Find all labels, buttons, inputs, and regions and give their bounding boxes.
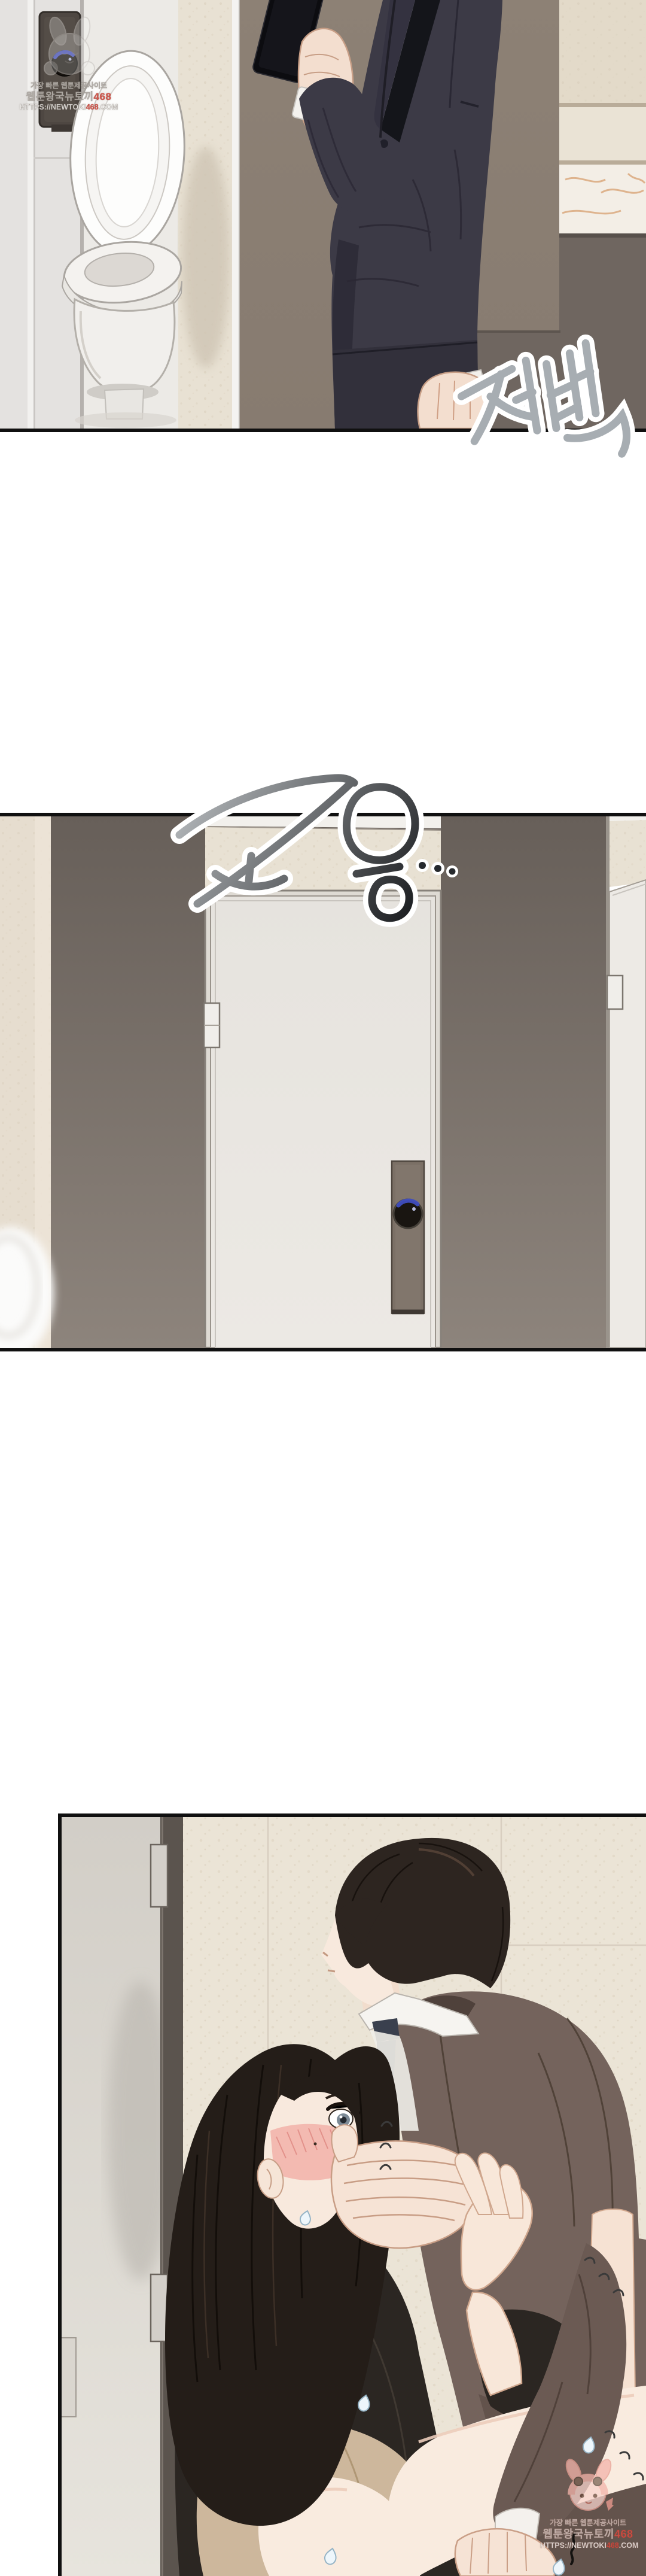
sfx-joyong-strokes [167, 758, 461, 955]
watermark-tagline: 가장 빠른 웹툰제공사이트 [540, 2519, 636, 2528]
hinge-plate-top [151, 1845, 167, 1907]
sfx-quiet: 조용 · · · · [167, 758, 461, 955]
watermark-top-left: 가장 빠른 웹툰제공사이트 웹툰왕국뉴토끼468 HTTPS://NEWTOKI… [12, 16, 126, 113]
door-edge-plate [62, 2338, 76, 2417]
watermark-url: HTTPS://NEWTOKI468.COM [12, 103, 126, 113]
stall-lock-plate [392, 1161, 424, 1314]
newtoki-mascot-pink-icon [560, 2457, 615, 2517]
neighbour-stall-door [606, 816, 646, 1348]
watermark-bottom-right: 가장 빠른 웹툰제공사이트 웹툰왕국뉴토끼468 HTTPS://NEWTOKI… [540, 2457, 636, 2550]
sfx-jeobeok-strokes [446, 326, 646, 488]
watermark-sitename: 웹툰왕국뉴토끼468 [540, 2528, 636, 2541]
hinge-plate-bottom [151, 2274, 167, 2341]
watermark-url: HTTPS://NEWTOKI468.COM [540, 2541, 636, 2551]
watermark-tagline: 가장 빠른 웹툰제공사이트 [12, 81, 126, 90]
webtoon-page: 저벅 [0, 0, 646, 2576]
sfx-trailing-dots [416, 859, 461, 880]
beauty-mark [314, 2143, 317, 2146]
sfx-footsteps: 저벅 [446, 326, 646, 488]
neighbour-door-hinge [607, 976, 623, 1009]
watermark-sitename: 웹툰왕국뉴토끼468 [12, 90, 126, 103]
stall-door-left [62, 1817, 183, 2576]
newtoki-mascot-gray-icon [33, 16, 105, 80]
stall-door [204, 891, 441, 1348]
